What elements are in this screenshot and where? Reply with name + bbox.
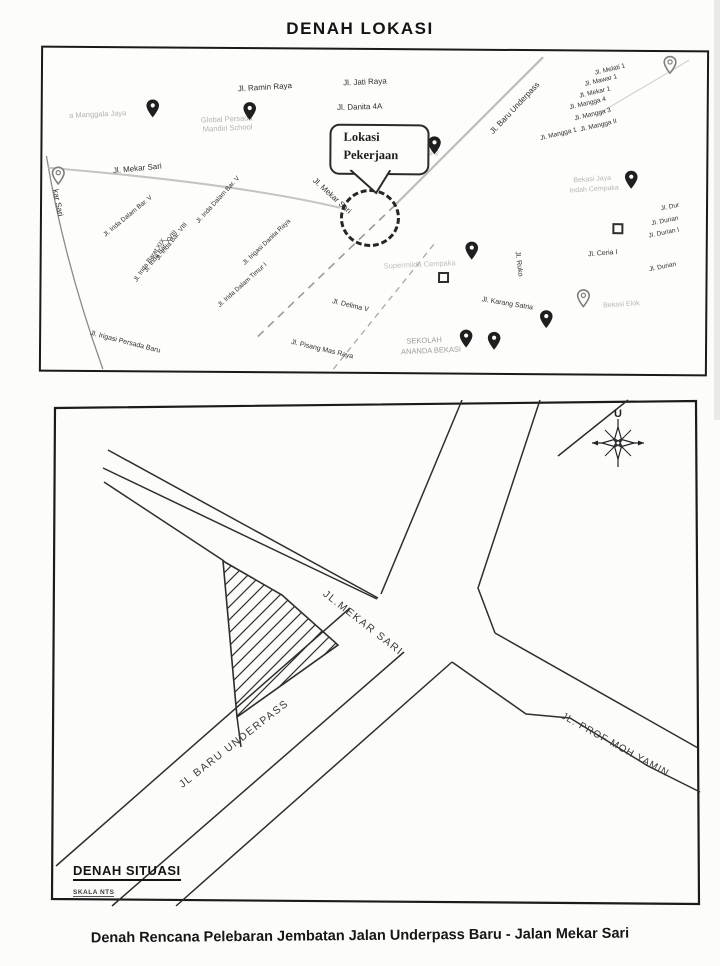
plan-roads bbox=[56, 400, 700, 906]
map-pin-icon bbox=[487, 331, 501, 350]
situation-plan-panel: U JL.MEKAR SARIJL BARU UNDERPASSJL. PROF… bbox=[48, 398, 702, 908]
work-location-circle bbox=[340, 189, 400, 247]
compass-rose-icon bbox=[592, 419, 644, 467]
map-pin-icon bbox=[539, 310, 553, 329]
scan-edge-shadow bbox=[714, 0, 720, 420]
plan-border bbox=[52, 401, 699, 904]
callout-line1: Lokasi bbox=[343, 129, 427, 147]
plan-legend: DENAH SITUASI SKALA NTS bbox=[73, 862, 181, 899]
map-pin-icon bbox=[459, 329, 473, 348]
callout-line2: Pekerjaan bbox=[343, 146, 427, 164]
map-pin-icon bbox=[465, 241, 479, 260]
legend-scale: SKALA NTS bbox=[73, 889, 114, 897]
street-label: Jl. Danita 4A bbox=[337, 102, 383, 112]
map-pin-icon bbox=[624, 170, 638, 189]
poi-square-icon bbox=[612, 223, 623, 234]
poi-square-icon bbox=[438, 272, 449, 283]
north-label: U bbox=[606, 408, 630, 420]
street-label: SEKOLAH bbox=[406, 335, 442, 346]
widening-hatched-area bbox=[223, 561, 338, 717]
map-pin-icon bbox=[243, 102, 257, 121]
map-pin-icon bbox=[146, 99, 160, 118]
caption: Denah Rencana Pelebaran Jembatan Jalan U… bbox=[0, 925, 720, 947]
page-title: DENAH LOKASI bbox=[0, 19, 720, 39]
situation-drawing bbox=[48, 398, 702, 908]
map-pin-icon bbox=[576, 289, 590, 308]
map-pin-icon bbox=[51, 166, 65, 185]
map-pin-icon bbox=[663, 56, 677, 75]
legend-title: DENAH SITUASI bbox=[73, 863, 181, 881]
lokasi-pekerjaan-callout: Lokasi Pekerjaan bbox=[329, 124, 429, 176]
callout-tail bbox=[342, 170, 394, 196]
location-map-panel: Jl. Ramin RayaJl. Jati RayaJl. Danita 4A… bbox=[39, 46, 709, 377]
